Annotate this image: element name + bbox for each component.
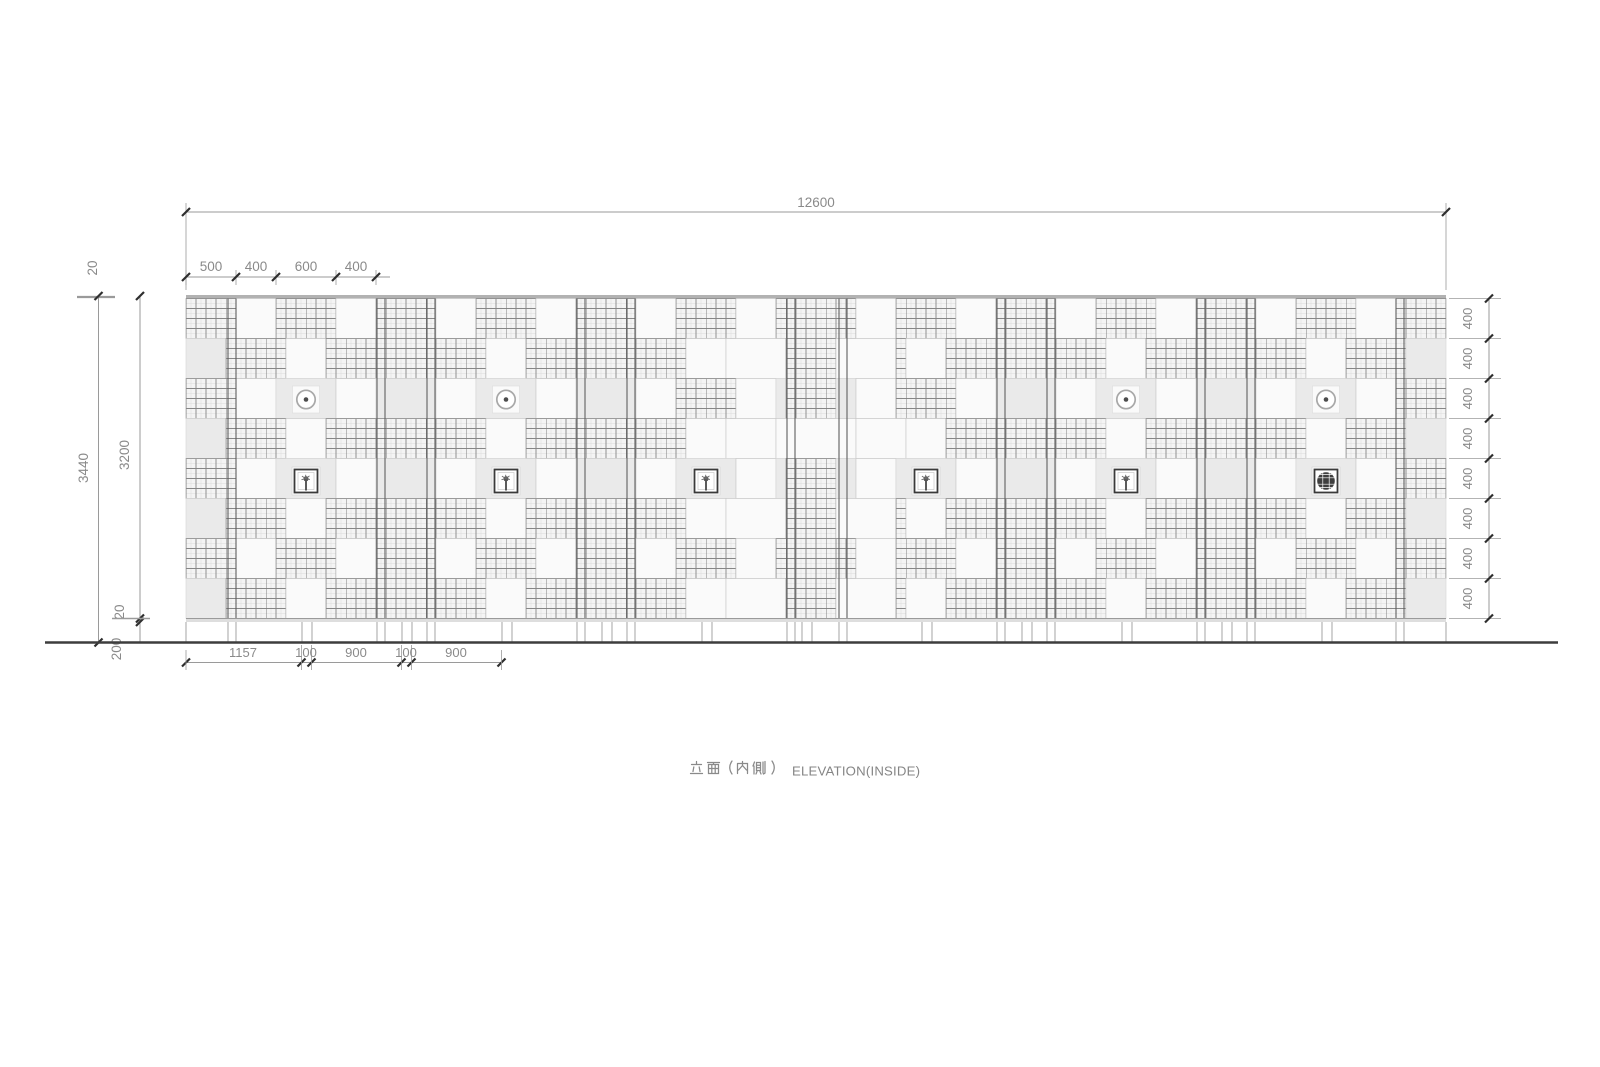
svg-text:20: 20	[112, 604, 127, 619]
svg-text:400: 400	[245, 259, 268, 274]
svg-text:400: 400	[1460, 588, 1475, 610]
svg-text:1157: 1157	[229, 645, 257, 660]
svg-text:400: 400	[1460, 428, 1475, 450]
svg-text:100: 100	[295, 645, 317, 660]
svg-text:ELEVATION(INSIDE): ELEVATION(INSIDE)	[792, 764, 920, 779]
svg-text:900: 900	[445, 645, 467, 660]
svg-text:400: 400	[345, 259, 368, 274]
svg-text:12600: 12600	[797, 195, 835, 210]
svg-text:400: 400	[1460, 348, 1475, 370]
svg-text:200: 200	[109, 638, 124, 661]
svg-text:3200: 3200	[117, 440, 132, 470]
svg-text:900: 900	[345, 645, 367, 660]
svg-text:500: 500	[200, 259, 223, 274]
svg-text:400: 400	[1460, 548, 1475, 570]
svg-text:600: 600	[295, 259, 318, 274]
svg-text:3440: 3440	[76, 453, 91, 483]
svg-text:400: 400	[1460, 388, 1475, 410]
svg-text:100: 100	[395, 645, 417, 660]
svg-text:20: 20	[85, 260, 100, 275]
svg-text:400: 400	[1460, 308, 1475, 330]
svg-text:400: 400	[1460, 468, 1475, 490]
svg-text:400: 400	[1460, 508, 1475, 530]
